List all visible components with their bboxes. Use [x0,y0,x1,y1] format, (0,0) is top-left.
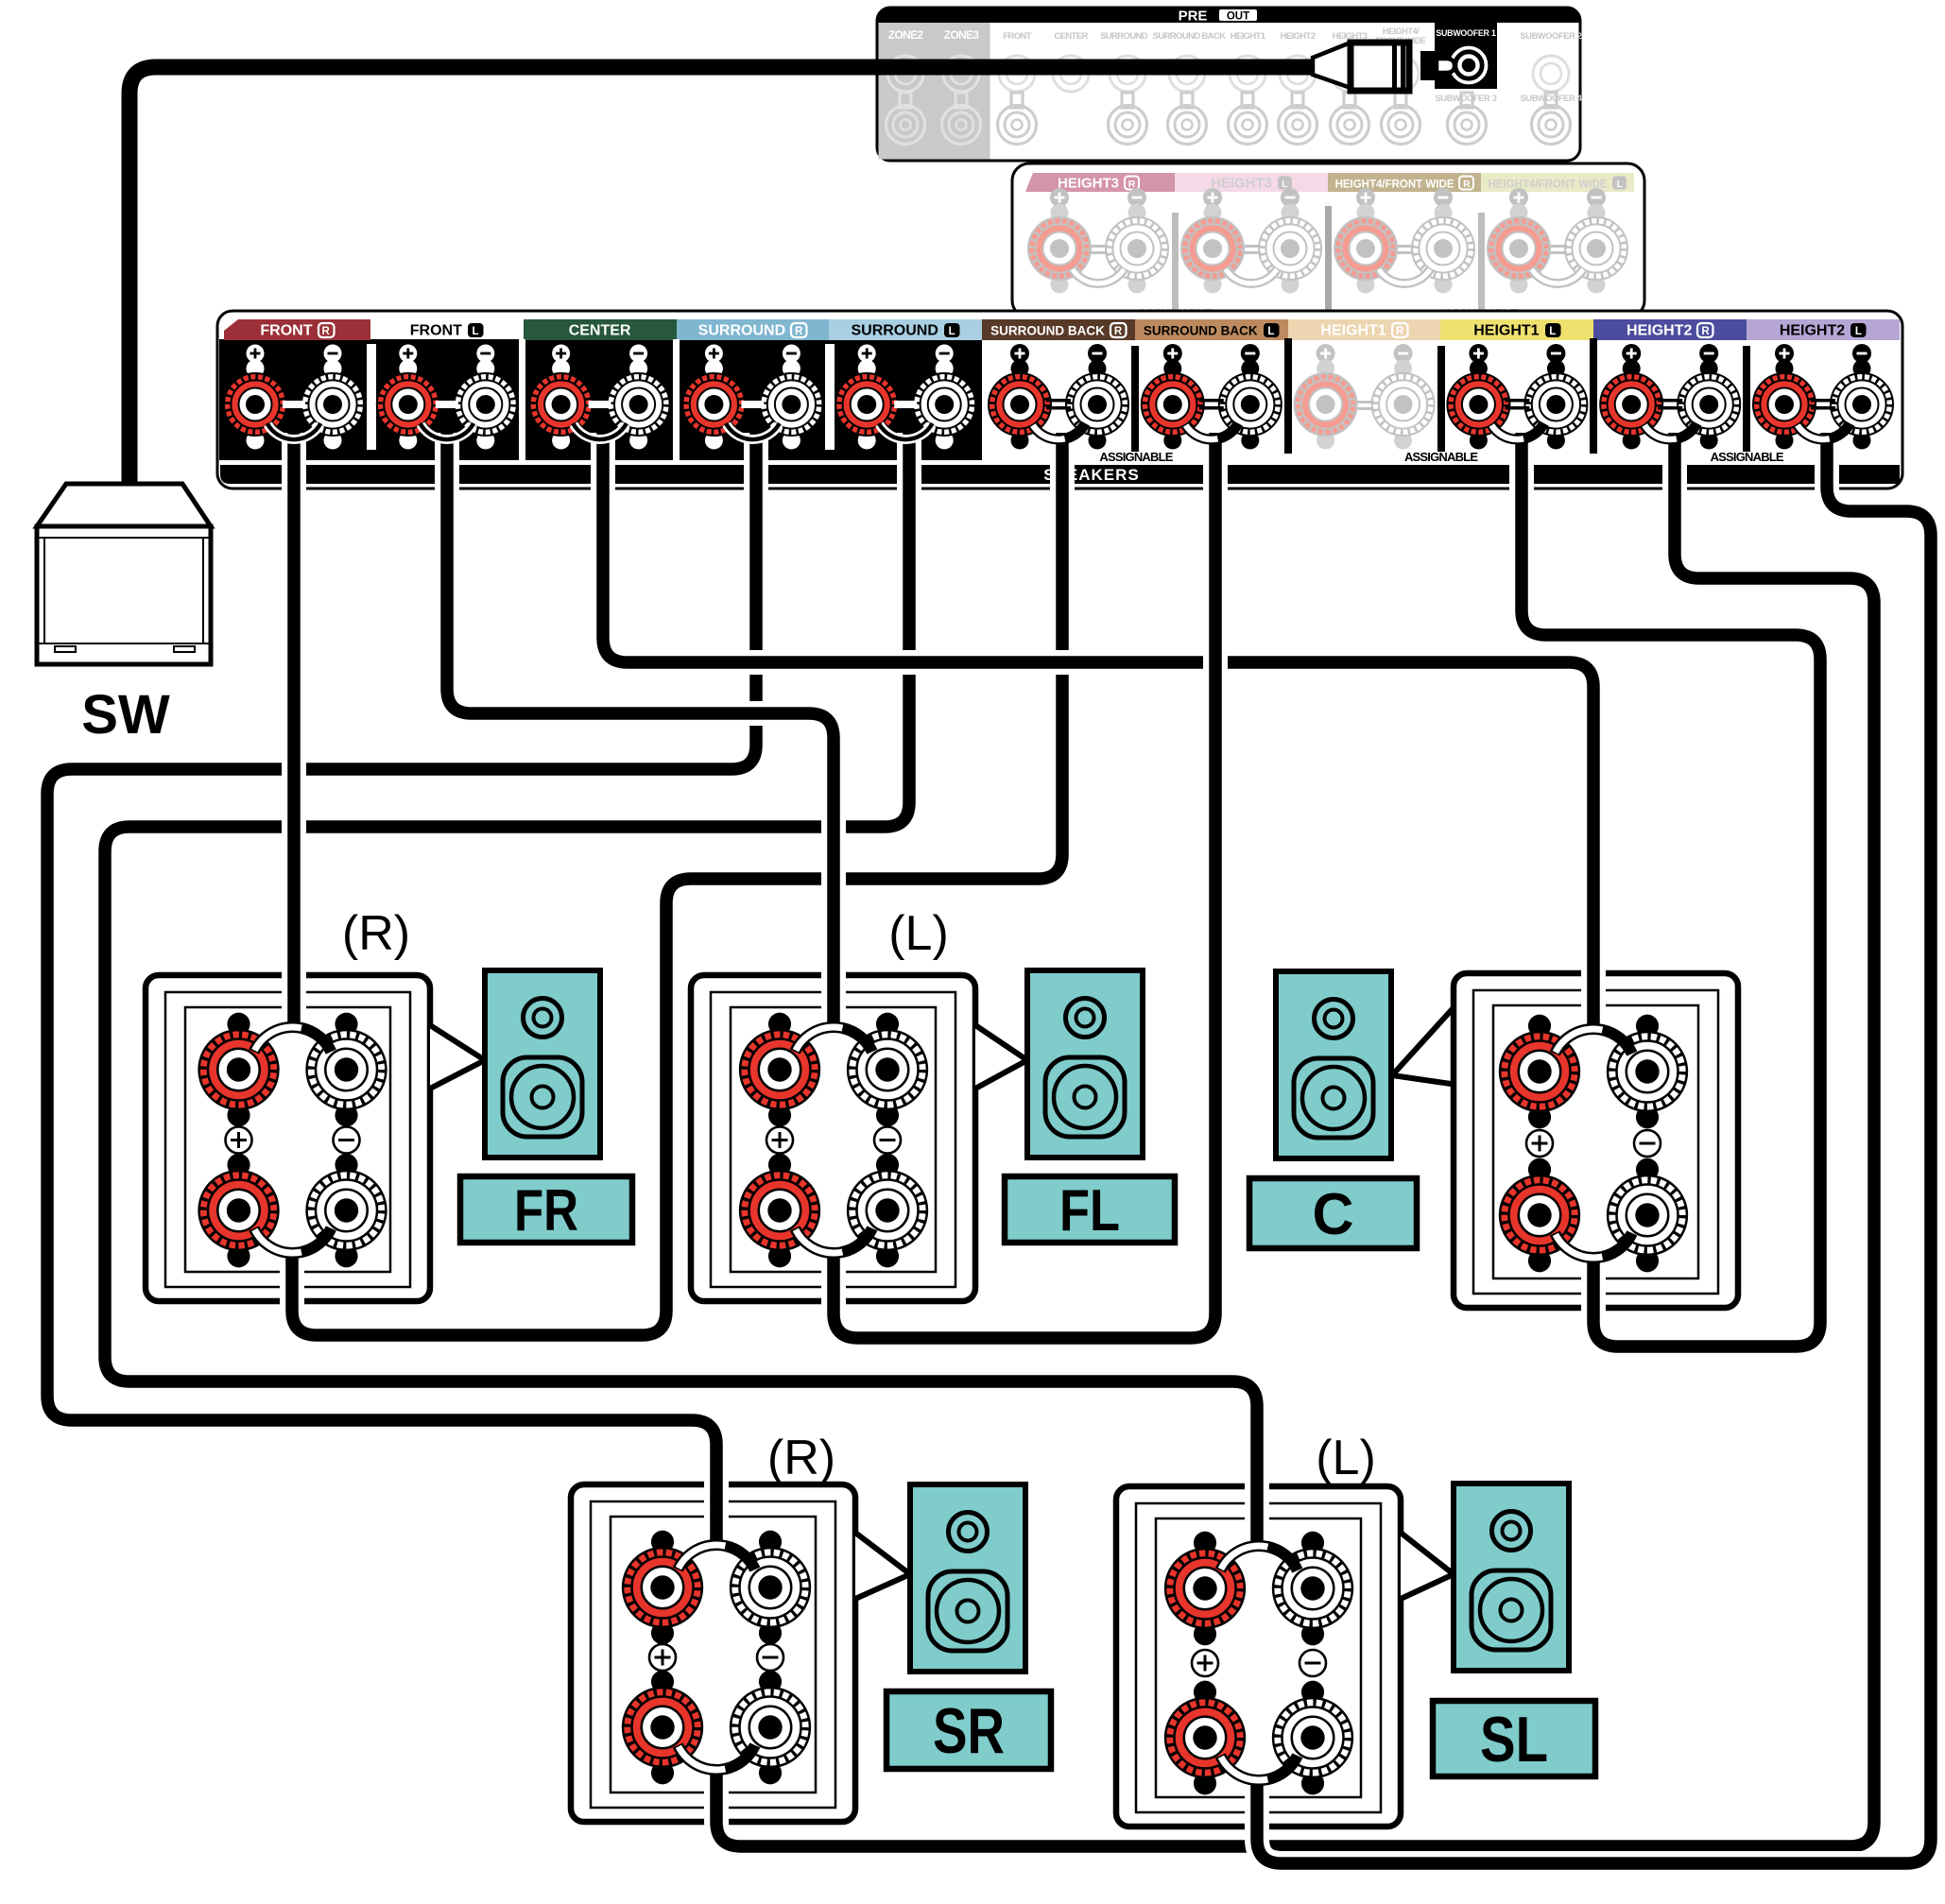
svg-text:SUBWOOFER 4: SUBWOOFER 4 [1520,94,1582,103]
svg-text:FRONT: FRONT [1003,31,1031,42]
svg-text:HEIGHT3: HEIGHT3 [1211,176,1272,192]
svg-text:SL: SL [1480,1704,1548,1775]
svg-text:HEIGHT4/: HEIGHT4/ [1383,26,1420,36]
svg-text:ASSIGNABLE: ASSIGNABLE [1711,450,1784,464]
svg-text:SURROUND: SURROUND [1100,31,1148,42]
svg-text:SURROUND BACK: SURROUND BACK [1144,324,1258,338]
svg-text:L: L [1855,326,1862,337]
svg-text:HEIGHT2: HEIGHT2 [1281,31,1316,42]
svg-text:HEIGHT2: HEIGHT2 [1780,323,1845,339]
svg-text:R: R [1128,179,1136,190]
svg-text:CENTER: CENTER [569,323,631,339]
svg-text:FR: FR [514,1178,578,1244]
svg-text:ZONE2: ZONE2 [888,28,924,42]
svg-text:SR: SR [933,1695,1005,1767]
svg-text:SURROUND BACK: SURROUND BACK [1153,31,1226,42]
svg-text:L: L [949,326,955,337]
svg-text:HEIGHT1: HEIGHT1 [1320,323,1386,339]
svg-text:FRONT: FRONT [260,323,312,339]
svg-text:(L): (L) [888,906,949,961]
svg-text:L: L [1267,326,1274,337]
svg-text:HEIGHT3: HEIGHT3 [1058,176,1119,192]
svg-text:PRE: PRE [1179,9,1208,25]
svg-text:CENTER: CENTER [1054,31,1088,42]
svg-text:L: L [473,326,479,337]
svg-text:SURROUND BACK: SURROUND BACK [990,324,1105,338]
svg-text:R: R [1114,326,1123,337]
svg-text:HEIGHT2: HEIGHT2 [1627,323,1692,339]
svg-text:(L): (L) [1316,1431,1376,1485]
svg-text:HEIGHT4/FRONT WIDE: HEIGHT4/FRONT WIDE [1489,180,1608,191]
svg-text:R: R [795,326,803,337]
svg-text:ZONE3: ZONE3 [944,28,980,42]
svg-text:R: R [1463,179,1471,190]
svg-text:HEIGHT1: HEIGHT1 [1231,31,1266,42]
svg-text:(R): (R) [342,906,410,961]
svg-text:HEIGHT4/FRONT WIDE: HEIGHT4/FRONT WIDE [1335,180,1454,191]
svg-text:FRONT: FRONT [410,323,462,339]
svg-text:L: L [1617,179,1624,190]
svg-text:R: R [1701,326,1710,337]
svg-text:L: L [1282,179,1288,190]
svg-text:ASSIGNABLE: ASSIGNABLE [1404,450,1478,464]
svg-text:SURROUND: SURROUND [698,323,785,339]
svg-text:R: R [1396,326,1404,337]
svg-text:SW: SW [81,684,170,746]
svg-text:SURROUND: SURROUND [851,323,938,339]
svg-text:SUBWOOFER 3: SUBWOOFER 3 [1435,94,1496,103]
svg-text:ASSIGNABLE: ASSIGNABLE [1099,450,1173,464]
svg-text:(R): (R) [767,1431,835,1485]
svg-text:OUT: OUT [1227,11,1249,23]
svg-text:SUBWOOFER 1: SUBWOOFER 1 [1436,28,1496,38]
svg-text:L: L [1549,326,1556,337]
svg-text:FL: FL [1059,1178,1120,1244]
svg-text:HEIGHT1: HEIGHT1 [1473,323,1539,339]
svg-text:SUBWOOFER 2: SUBWOOFER 2 [1520,31,1581,41]
svg-text:C: C [1313,1182,1354,1247]
svg-text:R: R [322,326,331,337]
